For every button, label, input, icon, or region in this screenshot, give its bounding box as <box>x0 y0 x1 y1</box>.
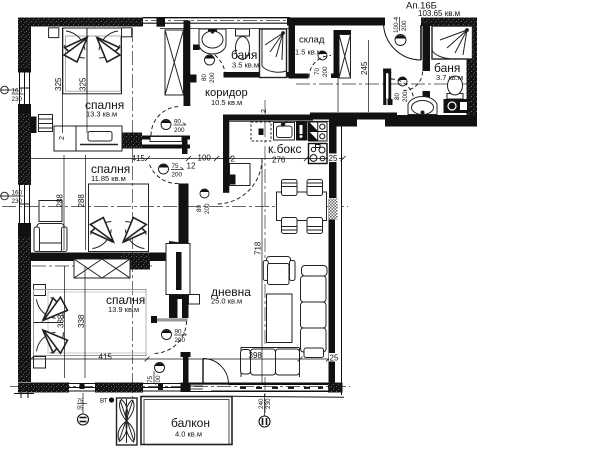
svg-text:398: 398 <box>249 351 263 360</box>
svg-text:200: 200 <box>155 375 162 386</box>
svg-text:230: 230 <box>265 398 272 409</box>
svg-text:25: 25 <box>329 154 338 163</box>
svg-text:11.85 кв.м: 11.85 кв.м <box>91 174 126 183</box>
svg-text:200: 200 <box>402 91 409 102</box>
svg-text:75: 75 <box>147 375 154 383</box>
svg-text:200: 200 <box>175 337 186 344</box>
svg-text:288: 288 <box>77 194 86 208</box>
svg-text:13.3 кв.м: 13.3 кв.м <box>86 110 117 119</box>
svg-text:ВТ: ВТ <box>100 398 108 405</box>
svg-text:103.65 кв.м: 103.65 кв.м <box>418 9 460 18</box>
svg-text:276: 276 <box>272 156 286 165</box>
svg-text:05: 05 <box>77 406 83 412</box>
svg-text:160: 160 <box>12 190 23 197</box>
svg-text:100-4: 100-4 <box>393 16 400 33</box>
svg-text:2: 2 <box>231 155 236 164</box>
svg-text:2: 2 <box>59 136 66 140</box>
svg-text:200: 200 <box>172 172 183 179</box>
svg-text:415: 415 <box>99 353 113 362</box>
svg-text:230: 230 <box>12 198 23 205</box>
svg-text:325: 325 <box>79 77 88 91</box>
svg-text:100: 100 <box>198 154 212 163</box>
svg-text:240: 240 <box>258 398 265 409</box>
svg-text:75: 75 <box>172 163 180 170</box>
svg-text:12: 12 <box>187 161 196 170</box>
svg-text:25.0 кв.м: 25.0 кв.м <box>211 297 242 306</box>
svg-text:200: 200 <box>401 20 408 31</box>
svg-text:13.9 кв.м: 13.9 кв.м <box>108 305 139 314</box>
svg-text:склад: склад <box>299 35 325 46</box>
svg-text:338: 338 <box>77 314 86 328</box>
svg-text:10.5 кв.м: 10.5 кв.м <box>211 98 242 107</box>
svg-text:80: 80 <box>394 92 401 100</box>
svg-text:к.бокс: к.бокс <box>268 142 302 156</box>
svg-text:80: 80 <box>201 73 208 81</box>
svg-text:200: 200 <box>174 127 185 134</box>
svg-text:3.5 кв.м: 3.5 кв.м <box>232 61 259 70</box>
svg-text:200: 200 <box>209 72 216 83</box>
svg-text:245: 245 <box>360 61 369 75</box>
svg-text:70: 70 <box>314 67 321 75</box>
svg-text:200: 200 <box>322 66 329 77</box>
svg-text:230: 230 <box>12 96 23 103</box>
svg-text:3.7 кв.м: 3.7 кв.м <box>436 73 463 82</box>
svg-text:90: 90 <box>175 329 183 336</box>
svg-text:160: 160 <box>12 88 23 95</box>
svg-text:718: 718 <box>254 241 263 255</box>
svg-text:200: 200 <box>204 203 211 214</box>
svg-text:338: 338 <box>57 314 66 328</box>
svg-text:балкон: балкон <box>171 416 210 430</box>
svg-text:2: 2 <box>261 109 268 113</box>
svg-text:80: 80 <box>196 204 203 212</box>
svg-text:25: 25 <box>330 354 339 363</box>
svg-text:4.0 кв.м: 4.0 кв.м <box>175 430 202 439</box>
svg-text:90: 90 <box>174 119 182 126</box>
svg-text:415: 415 <box>132 154 146 163</box>
svg-text:288: 288 <box>56 194 65 208</box>
svg-text:325: 325 <box>54 77 63 91</box>
